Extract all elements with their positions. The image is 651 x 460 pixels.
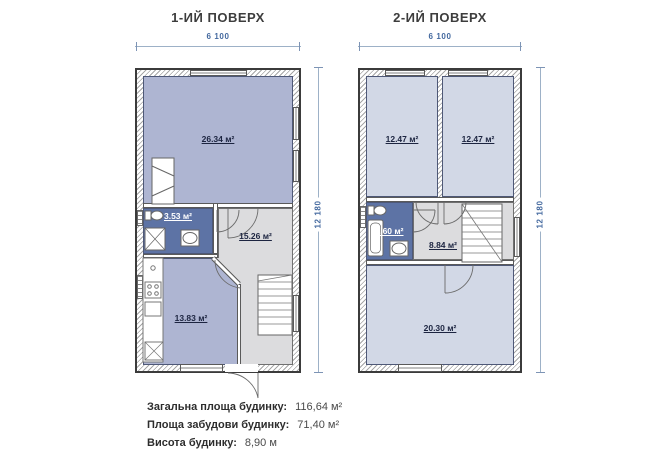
dimension-tick xyxy=(536,67,545,68)
floor2-bedroom-left-area-label: 12.47 м² xyxy=(366,134,438,144)
toilet-icon xyxy=(368,206,386,215)
floor1-kitchen-area-label: 13.83 м² xyxy=(143,313,239,323)
dimension-tick xyxy=(536,372,545,373)
floorplan-sheet: 1-ИЙ ПОВЕРХ 6 100 12 180 xyxy=(0,0,651,460)
floor2-bedroom-right-area-label: 12.47 м² xyxy=(442,134,514,144)
sink-icon xyxy=(390,241,408,256)
dimension-tick xyxy=(520,42,521,51)
dimension-tick xyxy=(136,42,137,51)
floor1-height-dim-label: 12 180 xyxy=(313,197,324,231)
floor1-width-dimension: 6 100 xyxy=(135,34,301,50)
floor2-living-area-label: 20.30 м² xyxy=(366,323,514,333)
summary-total-area: Загальна площа будинку:116,64 м² xyxy=(147,398,342,416)
floor1-bathroom-area-label: 3.53 м² xyxy=(143,211,213,221)
dimension-tick xyxy=(299,42,300,51)
dimension-line xyxy=(358,46,522,47)
floor2-width-dim-label: 6 100 xyxy=(358,32,522,41)
summary-footprint-area-label: Площа забудови будинку: xyxy=(147,419,289,431)
kitchen-counter-icon xyxy=(143,258,163,362)
staircase-icon xyxy=(258,275,292,335)
summary-height-value: 8,90 м xyxy=(245,437,277,449)
dimension-tick xyxy=(314,67,323,68)
entrance-door-swing xyxy=(219,371,265,401)
floor1-width-dim-label: 6 100 xyxy=(135,32,301,41)
floor1-hall-area-label: 15.26 м² xyxy=(218,231,293,241)
summary-height-label: Висота будинку: xyxy=(147,437,237,449)
dimension-tick xyxy=(314,372,323,373)
sink-icon xyxy=(181,230,199,246)
floor1-living-area-label: 26.34 м² xyxy=(143,134,293,144)
floor2-plan: 12.47 м² 12.47 м² 3.60 м² 8.84 м² 20.30 … xyxy=(358,68,522,373)
summary-total-area-value: 116,64 м² xyxy=(295,401,342,413)
staircase-icon xyxy=(462,204,502,262)
summary-height: Висота будинку:8,90 м xyxy=(147,434,342,452)
floor2-height-dim-label: 12 180 xyxy=(535,197,546,231)
summary-footprint-area: Площа забудови будинку:71,40 м² xyxy=(147,416,342,434)
dimension-tick xyxy=(359,42,360,51)
dimension-line xyxy=(135,46,301,47)
boiler-icon xyxy=(152,158,174,204)
shower-icon xyxy=(145,228,165,250)
summary-block: Загальна площа будинку:116,64 м² Площа з… xyxy=(147,398,342,452)
floor1-title: 1-ИЙ ПОВЕРХ xyxy=(135,10,301,25)
summary-total-area-label: Загальна площа будинку: xyxy=(147,401,287,413)
floor2-height-dimension: 12 180 xyxy=(534,67,550,373)
floor1-plan: 26.34 м² 3.53 м² 15.26 м² 13.83 м² xyxy=(135,68,301,373)
floor2-bathroom-area-label: 3.60 м² xyxy=(366,226,413,236)
floor2-hall-area-label: 8.84 м² xyxy=(413,240,473,250)
floor2-title: 2-ИЙ ПОВЕРХ xyxy=(358,10,522,25)
floor1-height-dimension: 12 180 xyxy=(312,67,328,373)
floor2-width-dimension: 6 100 xyxy=(358,34,522,50)
summary-footprint-area-value: 71,40 м² xyxy=(297,419,339,431)
